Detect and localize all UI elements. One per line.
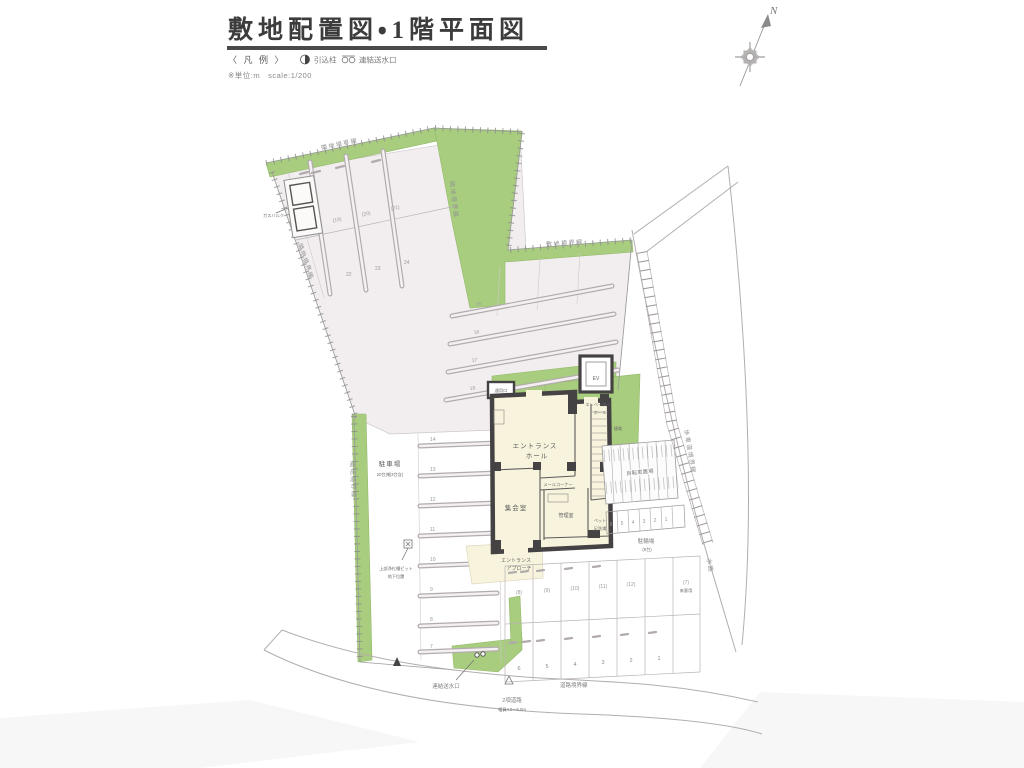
pit-label: 上部浄化槽ピット (379, 565, 413, 572)
header: 敷地配置図・1階平面図 〈 凡 例 〉 引込柱 連結送水口 ※単位:m scal… (227, 15, 547, 80)
standpipe-symbol (481, 652, 485, 656)
approach-label: エントランス (501, 558, 531, 564)
standpipe-symbol (475, 653, 479, 657)
boundary-label: 歩車道境界線 (682, 429, 698, 475)
cycle-number: 6 (610, 522, 613, 528)
stall-number: 6 (517, 666, 520, 672)
cycle-count: (6台) (642, 546, 652, 553)
stall-number: (10) (571, 586, 580, 592)
gas-label: ガスバルク (263, 212, 284, 219)
stall-number: 24 (404, 260, 410, 266)
stall-number: 7 (430, 644, 433, 650)
cycle-area-label: 駐輪場 (638, 537, 655, 545)
north-label: N (769, 5, 778, 17)
stall-number: 4 (573, 662, 576, 668)
parking-count: 20台(軽3台含) (377, 471, 404, 478)
road-name: 2項道路 (502, 696, 522, 704)
stall-number: 3 (601, 660, 604, 666)
pit-label: 地下位置 (388, 573, 405, 580)
waterway-label: 水路 (705, 558, 715, 574)
stall-number: 10 (430, 557, 436, 563)
cycle-number: 1 (665, 517, 668, 523)
scale-note: ※単位:m scale:1/200 (228, 70, 312, 80)
cycle-number: 3 (643, 519, 646, 525)
approach-opening (504, 546, 528, 554)
entrance-opening (526, 390, 542, 398)
stall-number: 22 (346, 272, 352, 278)
stall-number: 9 (430, 587, 433, 593)
page-title: 敷地配置図・1階平面図 (228, 15, 529, 44)
stall-number: (12) (627, 582, 636, 588)
stall-number: 16 (473, 329, 480, 336)
pet-wash-label: 足洗場 (594, 525, 607, 532)
legend-item-standpipe: 連結送水口 (359, 55, 397, 65)
road-boundary-label: 道路境界線 (560, 681, 588, 689)
ev-hall-label: エレベーター (585, 401, 610, 408)
stall-number: (9) (544, 588, 550, 594)
road-width: 幅員4.0〜5.0m (498, 706, 526, 713)
parking-area-label: 駐車場 (379, 459, 402, 468)
survey-mark (505, 676, 513, 684)
stall-number: (8) (516, 590, 522, 596)
site-plan-drawing: 敷地配置図・1階平面図 〈 凡 例 〉 引込柱 連結送水口 ※単位:m scal… (0, 0, 1024, 768)
legend-heading: 〈 凡 例 〉 (228, 54, 286, 65)
service-entrance-label: 通用口 (495, 387, 508, 394)
elevator-shaft (580, 356, 612, 392)
ev-hall-label: ホール (594, 410, 607, 415)
planting-label: 植栽 (614, 425, 623, 432)
title-underline (227, 46, 547, 50)
stall-number: 17 (471, 357, 478, 364)
pole-icon-fill (305, 55, 310, 64)
pet-wash-label: ペット (594, 518, 607, 523)
scan-shading (0, 700, 420, 768)
standpipe-icon (342, 56, 355, 63)
stall-number: 8 (430, 617, 433, 623)
ev-label: EV (593, 376, 600, 382)
stall-number: 1 (657, 656, 660, 662)
stall-number: 14 (430, 437, 436, 443)
stall-number: 18 (469, 385, 476, 392)
guest-number: (7) (683, 580, 689, 586)
stall-number: (11) (599, 584, 608, 590)
stall-number: 12 (430, 497, 436, 503)
cycle-number: 5 (621, 521, 624, 527)
entrance-hall-label: ホール (526, 452, 549, 460)
legend-item-pole: 引込柱 (314, 55, 337, 65)
cycle-number: 2 (654, 518, 657, 524)
stall-number: 11 (430, 527, 435, 533)
compass: N (735, 5, 778, 86)
stall-number: 2 (629, 658, 632, 664)
stall-number: 13 (430, 467, 436, 473)
guest-label: 来客用 (680, 587, 693, 594)
cycle-number: 4 (632, 520, 635, 526)
meeting-room-label: 集会室 (505, 503, 528, 512)
office-label: 管理室 (558, 512, 573, 519)
stall-number: 23 (375, 266, 381, 272)
standpipe-label: 連結送水口 (432, 682, 460, 690)
stall-number: 5 (545, 664, 548, 670)
entrance-hall-label: エントランス (513, 442, 558, 450)
stall-number: 15 (475, 301, 482, 308)
